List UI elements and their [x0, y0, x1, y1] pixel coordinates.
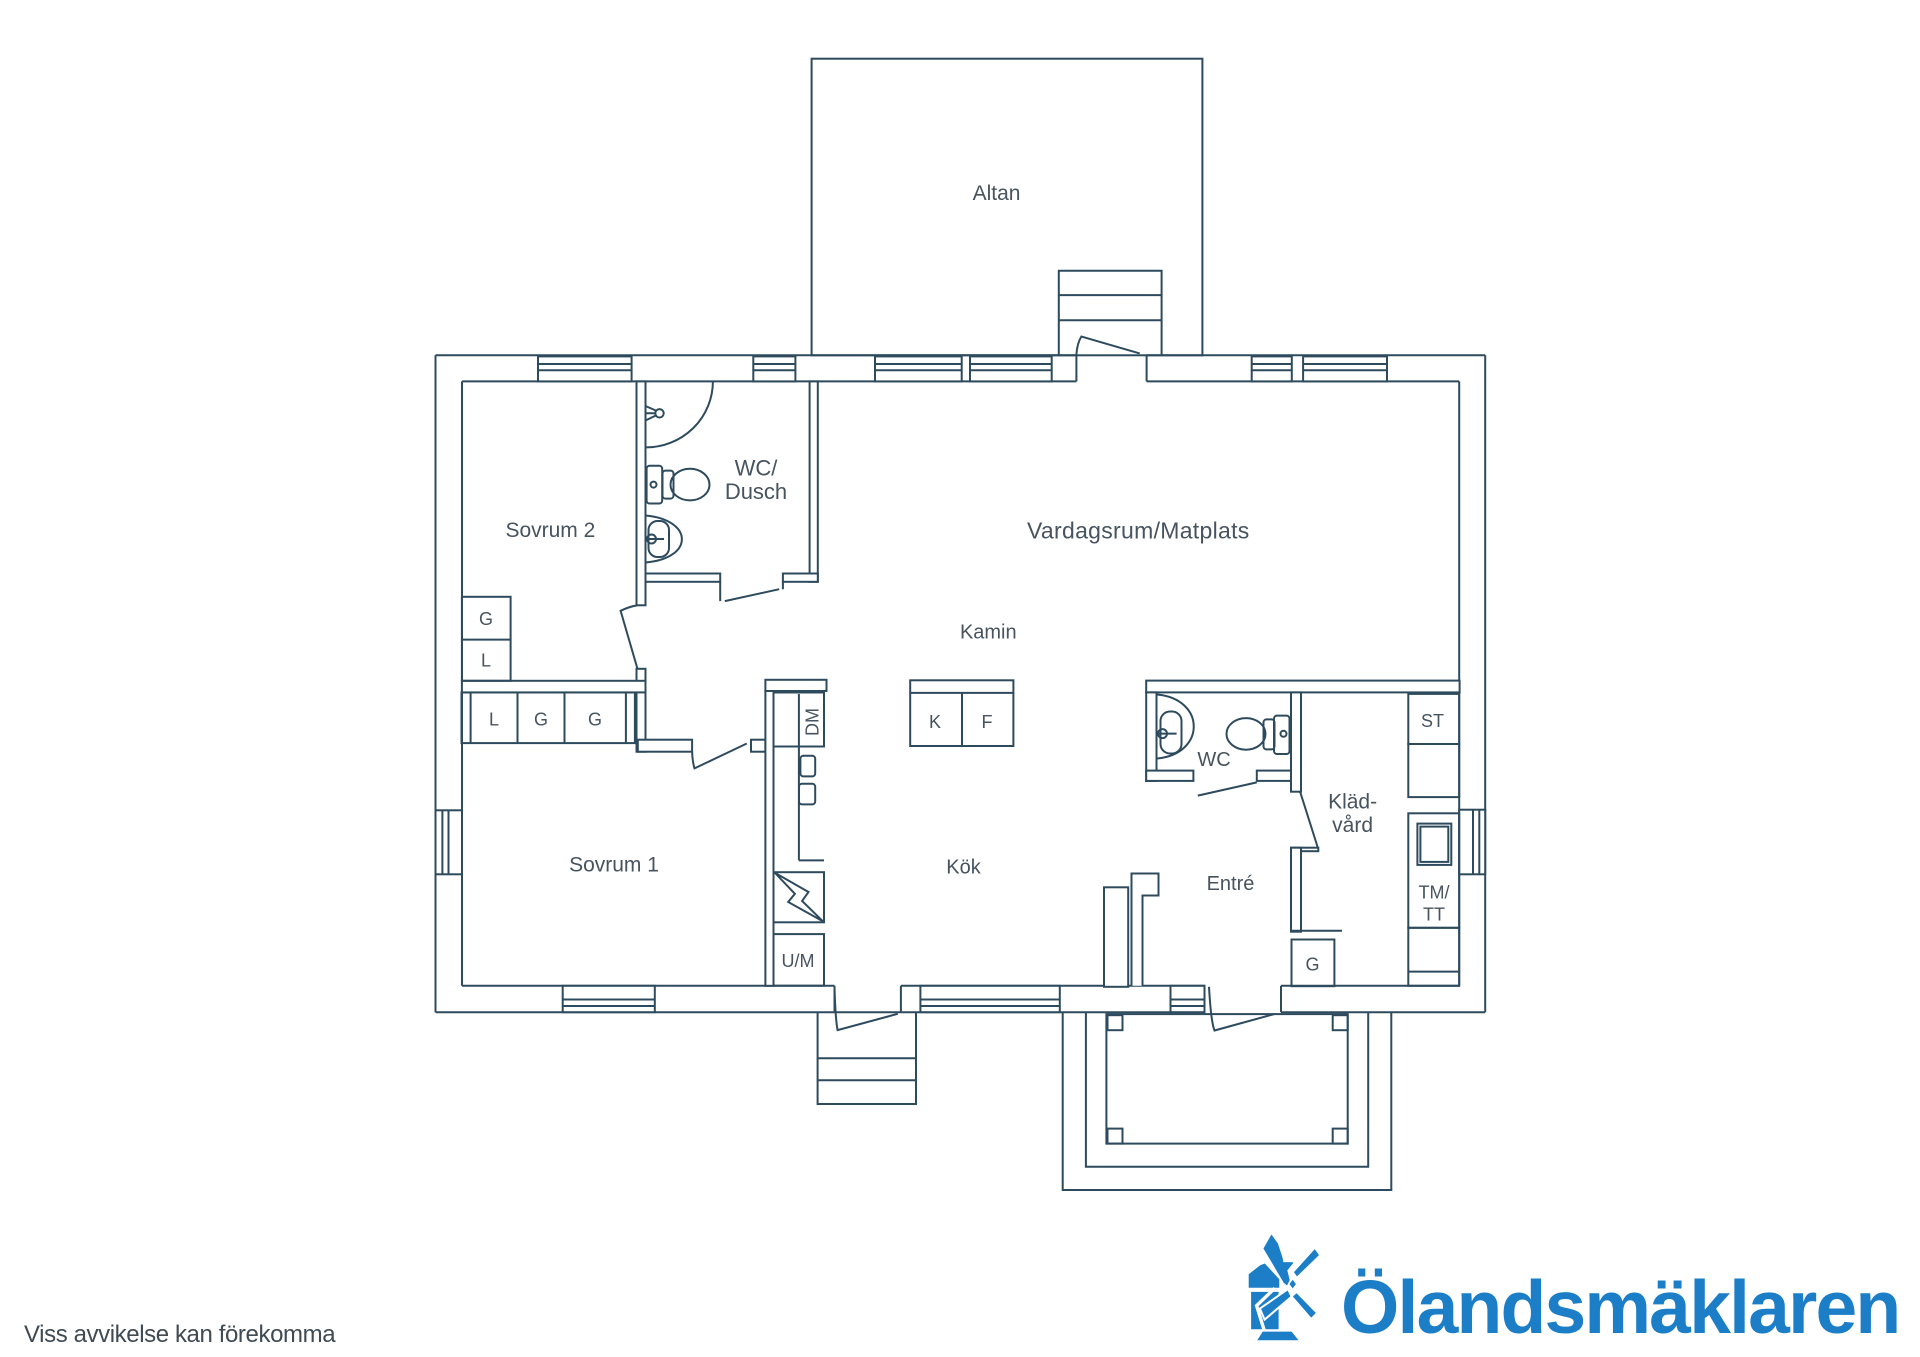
svg-text:U/M: U/M [782, 951, 815, 971]
svg-text:Ölandsmäklaren: Ölandsmäklaren [1341, 1265, 1899, 1349]
svg-text:Sovrum 1: Sovrum 1 [569, 854, 659, 877]
svg-text:vård: vård [1332, 814, 1373, 837]
svg-text:Dusch: Dusch [725, 479, 787, 504]
svg-text:Entré: Entré [1207, 873, 1255, 895]
svg-text:Viss avvikelse kan förekomma: Viss avvikelse kan förekomma [24, 1321, 336, 1348]
svg-text:G: G [588, 710, 602, 730]
svg-text:Sovrum 2: Sovrum 2 [505, 519, 595, 542]
svg-text:Kök: Kök [946, 857, 981, 879]
svg-text:G: G [534, 710, 548, 730]
svg-text:G: G [1305, 955, 1319, 975]
svg-text:TM/: TM/ [1419, 883, 1450, 903]
svg-text:Kläd-: Kläd- [1328, 791, 1377, 814]
svg-text:G: G [479, 609, 493, 629]
svg-text:K: K [929, 712, 941, 732]
svg-text:Vardagsrum/Matplats: Vardagsrum/Matplats [1027, 518, 1250, 544]
svg-text:WC/: WC/ [735, 456, 779, 481]
svg-text:ST: ST [1421, 711, 1444, 731]
svg-text:TT: TT [1423, 905, 1445, 925]
svg-text:Kamin: Kamin [960, 622, 1017, 644]
svg-text:Altan: Altan [973, 182, 1021, 205]
svg-text:L: L [481, 651, 491, 671]
svg-text:DM: DM [803, 708, 823, 736]
svg-text:L: L [489, 710, 499, 730]
svg-text:F: F [982, 712, 993, 732]
svg-text:WC: WC [1197, 749, 1230, 771]
